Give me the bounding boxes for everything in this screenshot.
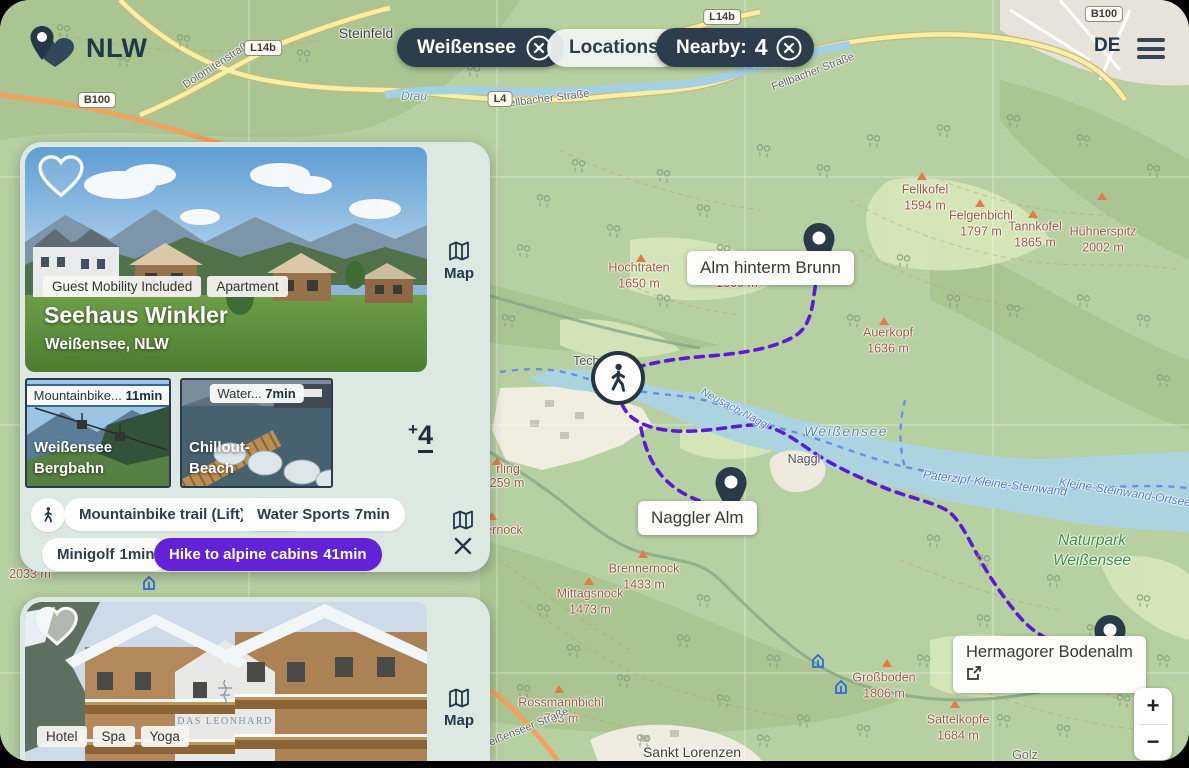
road-badge-b100-2: B100 [1085,6,1123,22]
tag-spa: Spa [93,726,135,747]
menu-bar [1137,55,1165,59]
road-badge-l4: L4 [488,91,513,107]
map-icon [450,508,476,532]
activity-chip-hike-alpine-cabins[interactable]: Hike to alpine cabins41min [154,538,382,571]
heart-icon [33,604,81,648]
logo-text: NLW [86,33,148,64]
filter-chip-label: Weißensee [417,37,516,59]
external-link-row[interactable] [966,665,1133,686]
thumbnail-name: Chillout-Beach [189,437,250,481]
nearby-chip[interactable]: Nearby: 4 [656,28,814,67]
walking-person-icon [603,362,633,394]
activity-chip-minigolf[interactable]: Minigolf1min [42,538,170,571]
thumbnail-label: Mountainbike... 11min [25,384,171,407]
favorite-button[interactable] [33,604,81,651]
zoom-in-button[interactable]: + [1134,688,1172,724]
road-badge-l14b-2: L14b [703,9,741,25]
tag-yoga: Yoga [141,726,189,747]
menu-bar [1137,47,1165,51]
logo-heart-pin-icon [26,24,80,72]
more-photos-link[interactable]: +4 [408,420,433,451]
app-window: Steinfeld Fellbach Techendorf Naggl Sank… [0,0,1189,761]
building-sign-text: DAS LEONHARD [177,716,273,727]
road-badge-b100-1: B100 [78,92,116,108]
favorite-button[interactable] [35,152,87,203]
property-location: Weißensee, NLW [45,336,169,354]
nearby-label: Nearby: [676,37,747,59]
thumbnail-name: WeißenseeBergbahn [34,437,112,481]
zoom-out-button[interactable]: − [1134,725,1172,761]
tag-guest-mobility: Guest Mobility Included [43,276,201,297]
map-icon [446,686,472,710]
map-icon [446,239,472,263]
thumbnail-label: Water... 7min [209,384,303,403]
poi-label-text: Hermagorer Bodenalm [966,643,1133,661]
card-map-toggle[interactable] [450,508,476,535]
close-icon [453,536,473,556]
app-logo[interactable]: NLW [26,24,148,72]
locations-label: Locations [569,37,659,59]
property-photo[interactable]: Guest Mobility Included Apartment Seehau… [25,147,427,372]
walking-time-chip [31,498,65,532]
map-zoom-control: + − [1134,688,1172,760]
pedestrian-icon [40,506,56,524]
property-photo[interactable]: DAS LEONHARD Hotel Spa Yoga [25,602,427,761]
language-selector[interactable]: DE [1094,35,1120,57]
property-tags: Guest Mobility Included Apartment [43,276,288,297]
show-on-map-button[interactable]: Map [434,685,484,730]
card-close-button[interactable] [453,536,473,559]
remove-nearby-icon[interactable] [776,35,802,61]
road-badge-l14b-1: L14b [244,40,282,56]
device-frame: Steinfeld Fellbach Techendorf Naggl Sank… [0,0,1189,768]
poi-label-hermagorer-bodenalm[interactable]: Hermagorer Bodenalm [953,636,1146,693]
map-button-label: Map [444,265,474,282]
property-title: Seehaus Winkler [44,302,228,329]
property-card-seehaus-winkler[interactable]: Guest Mobility Included Apartment Seehau… [20,142,490,572]
filter-chip-weissensee[interactable]: Weißensee [397,28,564,67]
thumbnail-chillout-beach[interactable]: Water... 7min Chillout-Beach [180,378,333,488]
poi-label-naggler-alm[interactable]: Naggler Alm [638,501,757,535]
menu-bar [1137,38,1165,42]
activity-chip-watersports[interactable]: Water Sports7min [242,498,405,531]
nearby-count: 4 [755,34,768,61]
tag-apartment: Apartment [207,276,287,297]
poi-label-text: Naggler Alm [651,508,744,527]
poi-label-text: Alm hinterm Brunn [700,258,841,277]
poi-label-alm-hinterm-brunn[interactable]: Alm hinterm Brunn [687,251,854,285]
thumbnail-bergbahn[interactable]: Mountainbike... 11min WeißenseeBergbahn [25,378,171,488]
map-button-label: Map [444,712,474,729]
show-on-map-button[interactable]: Map [434,238,484,283]
menu-button[interactable] [1137,38,1165,59]
external-link-icon [966,665,982,681]
walking-person-marker[interactable] [591,351,645,405]
tag-hotel: Hotel [37,726,87,747]
property-tags: Hotel Spa Yoga [37,726,189,747]
heart-icon [35,152,87,200]
property-card-das-leonhard[interactable]: DAS LEONHARD Hotel Spa Yoga Map [20,597,490,761]
